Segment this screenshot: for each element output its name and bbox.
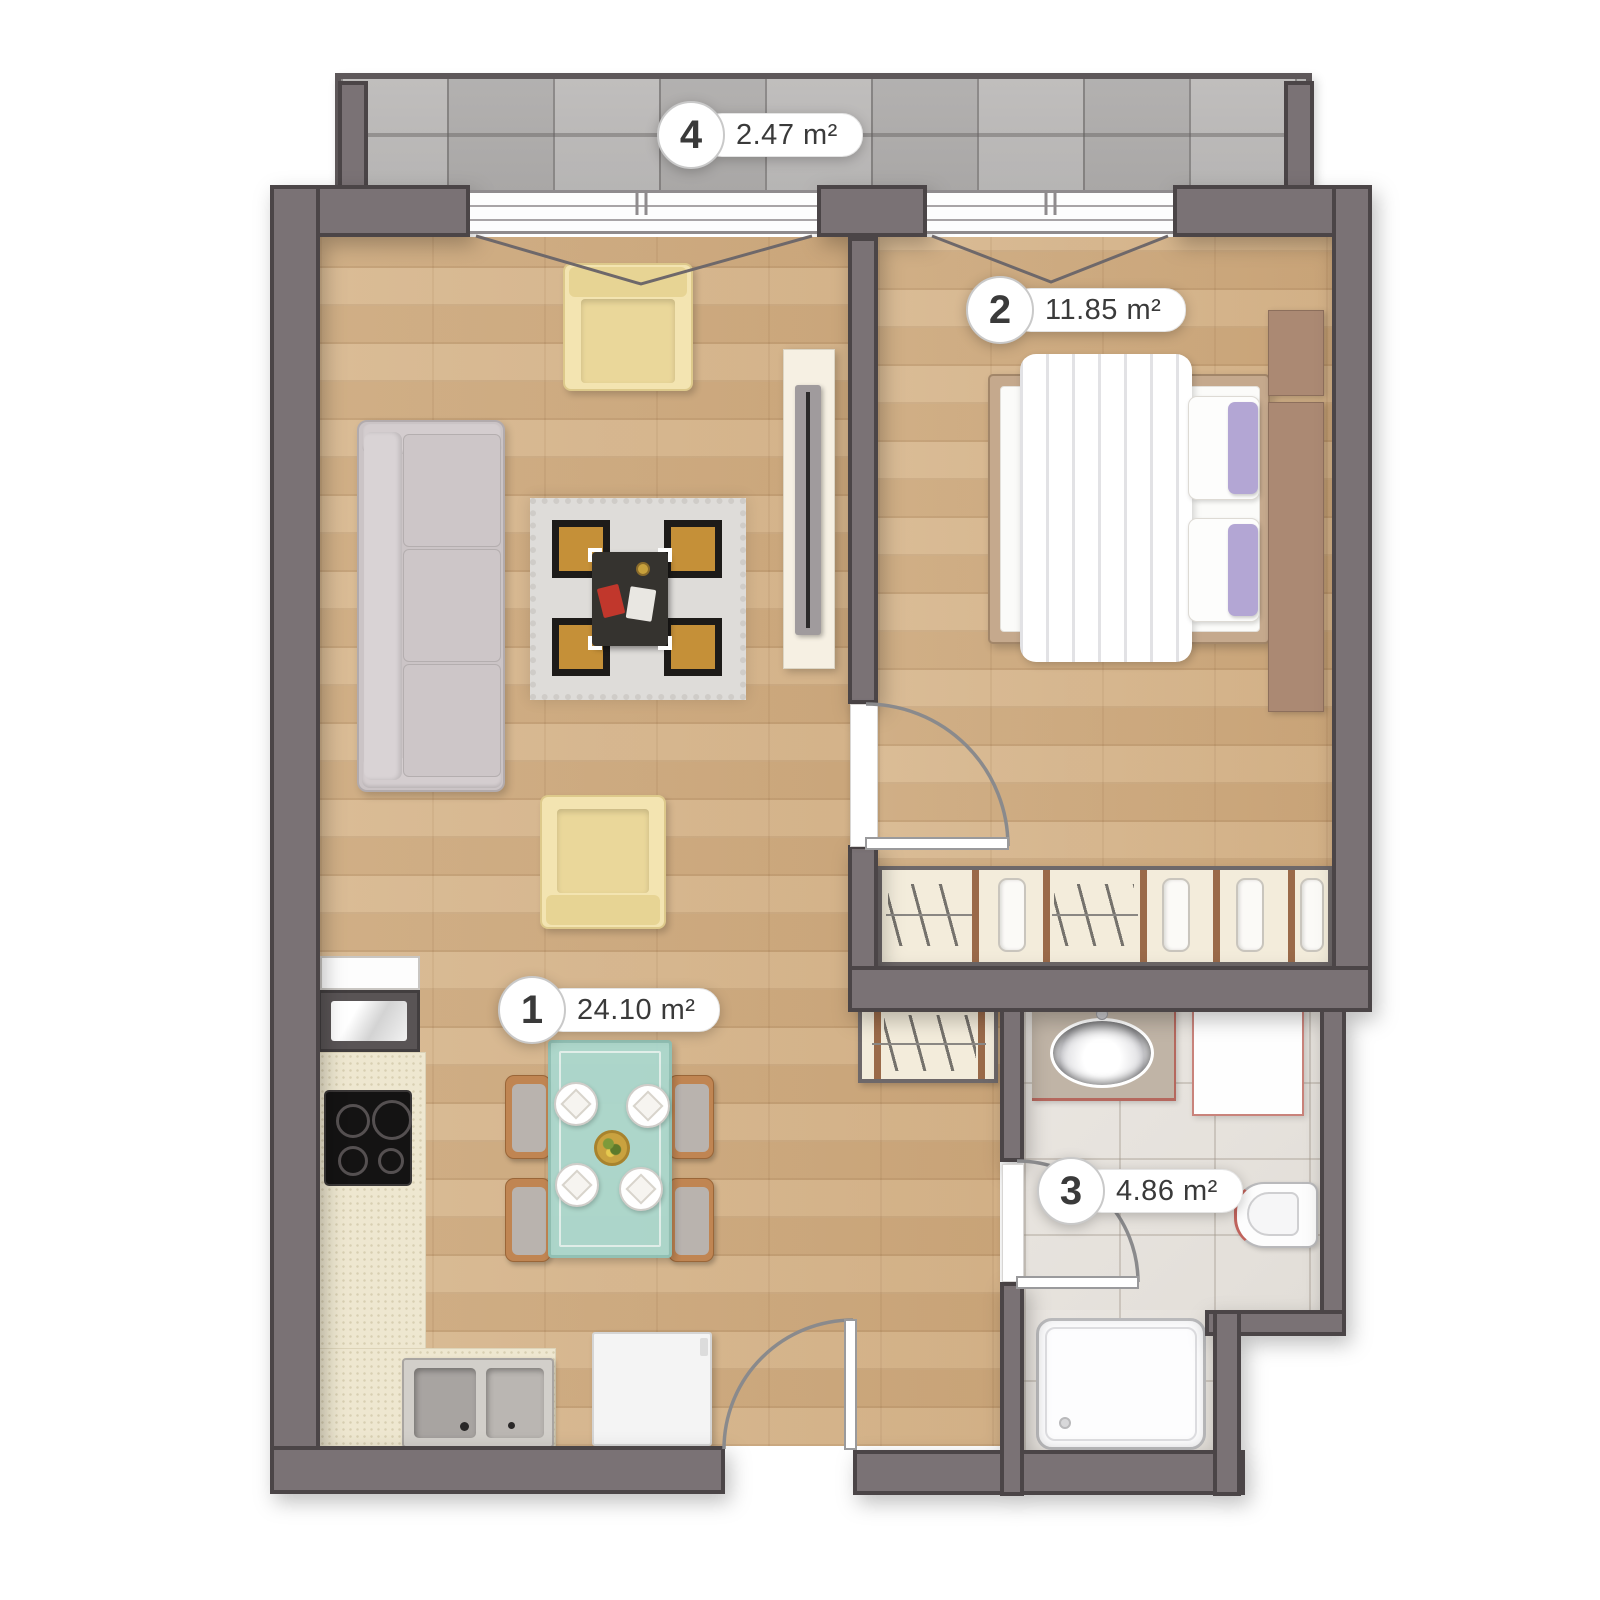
room-label-3: 3 4.86 m² [1037, 1157, 1243, 1225]
room-number: 4 [680, 113, 702, 158]
room-area-pill: 4.86 m² [1081, 1169, 1243, 1213]
floor-plan: 1 24.10 m² 2 11.85 m² 3 4.86 m² 4 2.47 m… [0, 0, 1600, 1600]
room-number: 2 [989, 288, 1011, 333]
room-area-pill: 24.10 m² [542, 988, 720, 1032]
room-number-badge: 4 [657, 101, 725, 169]
room-label-4: 4 2.47 m² [657, 101, 863, 169]
room-area: 11.85 m² [1045, 294, 1161, 327]
room-area: 24.10 m² [577, 994, 695, 1027]
labels-layer: 1 24.10 m² 2 11.85 m² 3 4.86 m² 4 2.47 m… [0, 0, 1600, 1600]
room-area: 4.86 m² [1116, 1175, 1218, 1208]
room-label-1: 1 24.10 m² [498, 976, 720, 1044]
room-number: 3 [1060, 1169, 1082, 1214]
room-number-badge: 3 [1037, 1157, 1105, 1225]
room-label-2: 2 11.85 m² [966, 276, 1186, 344]
room-area-pill: 11.85 m² [1010, 288, 1186, 332]
room-number: 1 [521, 988, 543, 1033]
room-area: 2.47 m² [736, 119, 838, 152]
room-number-badge: 2 [966, 276, 1034, 344]
room-area-pill: 2.47 m² [701, 113, 863, 157]
room-number-badge: 1 [498, 976, 566, 1044]
